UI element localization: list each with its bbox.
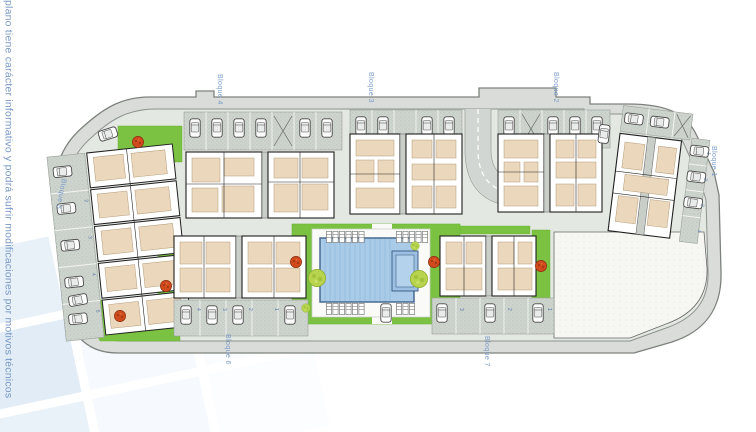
car-icon bbox=[356, 117, 366, 135]
building-bloque-3 bbox=[350, 110, 462, 214]
car-icon bbox=[624, 113, 644, 126]
tree-green-icon bbox=[308, 269, 325, 286]
parking-row-bloque-7: 3 2 1 bbox=[432, 298, 554, 334]
tree-red-icon bbox=[428, 256, 439, 267]
car-icon bbox=[68, 313, 87, 325]
watermark-disclaimer: plano tiene carácter informativo y podrá… bbox=[2, 0, 15, 432]
shrub-icon bbox=[411, 242, 420, 251]
parking-number: 3 bbox=[221, 308, 227, 311]
label-bloque-7: Bloque 7 bbox=[483, 336, 490, 367]
car-icon bbox=[533, 304, 543, 322]
parking-number: 3 bbox=[458, 308, 464, 311]
car-icon bbox=[548, 117, 558, 135]
shrub-icon bbox=[302, 304, 311, 313]
building-bloque-1: 1 2 3 4 bbox=[608, 106, 716, 244]
label-bloque-3: Bloque 3 bbox=[367, 72, 374, 103]
car-icon bbox=[233, 306, 243, 324]
car-icon bbox=[212, 119, 222, 137]
parking-number: 1 bbox=[546, 308, 552, 311]
tree-red-icon bbox=[160, 280, 171, 291]
car-icon bbox=[437, 304, 447, 322]
car-icon bbox=[181, 306, 191, 324]
label-bloque-4: Bloque 4 bbox=[216, 74, 223, 105]
parking-row-bloque-6: 4 3 2 1 bbox=[174, 300, 308, 336]
car-icon bbox=[485, 304, 495, 322]
building-bloque-4 bbox=[184, 112, 342, 218]
tree-red-icon bbox=[132, 136, 143, 147]
car-icon bbox=[234, 119, 244, 137]
car-icon bbox=[378, 117, 388, 135]
car-icon bbox=[650, 116, 670, 129]
tree-red-icon bbox=[114, 310, 125, 321]
parking-number: 2 bbox=[247, 308, 253, 311]
label-bloque-2: Bloque 2 bbox=[552, 72, 559, 103]
car-icon bbox=[190, 119, 200, 137]
car-icon bbox=[64, 276, 83, 288]
label-bloque-1: Bloque 1 bbox=[710, 146, 717, 177]
car-icon bbox=[322, 119, 332, 137]
car-icon bbox=[381, 304, 391, 322]
car-icon bbox=[300, 119, 310, 137]
building-bloque-7: 3 2 1 bbox=[432, 236, 554, 334]
parking-number: 2 bbox=[506, 308, 512, 311]
car-icon bbox=[61, 239, 80, 251]
car-icon bbox=[422, 117, 432, 135]
car-icon bbox=[570, 117, 580, 135]
parking-row-bloque-4 bbox=[184, 112, 342, 150]
car-icon bbox=[285, 306, 295, 324]
car-icon bbox=[504, 117, 514, 135]
car-icon bbox=[53, 165, 72, 177]
site-plan-drawing: 1 2 3 4 2 3 4 5 bbox=[0, 0, 756, 432]
swimming-pool bbox=[320, 238, 418, 302]
tree-green-icon bbox=[410, 270, 427, 287]
site-plan-canvas: 1 2 3 4 2 3 4 5 bbox=[0, 0, 756, 432]
parking-number: 4 bbox=[195, 308, 201, 311]
tree-red-icon bbox=[290, 256, 301, 267]
car-icon bbox=[207, 306, 217, 324]
car-icon bbox=[444, 117, 454, 135]
car-icon bbox=[598, 124, 611, 144]
label-bloque-6: Bloque 6 bbox=[224, 334, 231, 365]
building-bloque-6: 4 3 2 1 bbox=[174, 236, 308, 336]
car-icon bbox=[256, 119, 266, 137]
building-bloque-2 bbox=[498, 110, 610, 212]
tree-red-icon bbox=[535, 260, 546, 271]
parking-number: 1 bbox=[273, 308, 279, 311]
